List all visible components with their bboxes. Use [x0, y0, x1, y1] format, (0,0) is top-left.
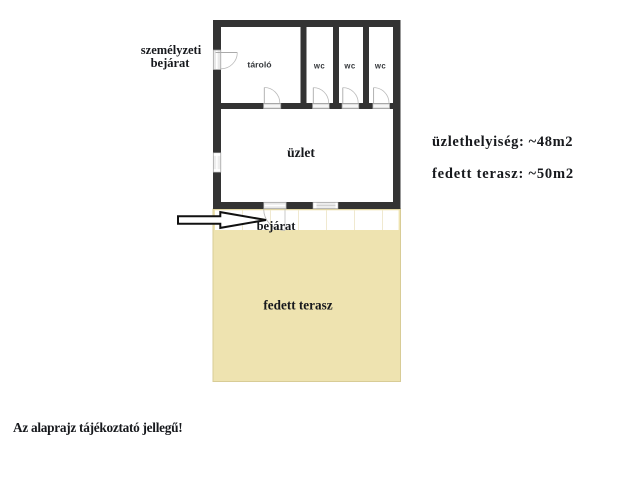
svg-text:fedett terasz: fedett terasz: [263, 298, 332, 313]
svg-text:wc: wc: [374, 62, 386, 71]
svg-text:wc: wc: [343, 62, 355, 71]
svg-text:bejárat: bejárat: [257, 219, 297, 233]
svg-text:fedett terasz: ~50m2: fedett terasz: ~50m2: [432, 166, 574, 182]
svg-text:üzlet: üzlet: [287, 145, 315, 160]
svg-text:üzlethelyiség: ~48m2: üzlethelyiség: ~48m2: [432, 134, 573, 150]
svg-text:Az alaprajz tájékoztató jelleg: Az alaprajz tájékoztató jellegű!: [13, 420, 182, 435]
svg-text:bejárat: bejárat: [151, 56, 191, 70]
svg-text:tároló: tároló: [247, 60, 271, 70]
svg-text:személyzeti: személyzeti: [141, 43, 202, 57]
svg-text:wc: wc: [313, 62, 325, 71]
